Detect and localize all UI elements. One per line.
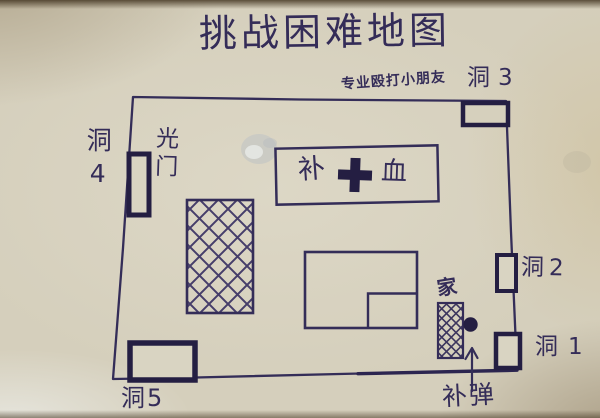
hole-5-door [130,343,195,380]
light-door-label: 光门 [151,126,177,183]
hole-2-label: 洞2 [521,256,569,281]
hole-5-label: 洞5 [121,386,164,411]
hole-1-door [496,334,520,368]
center-building-inner-room [368,294,417,329]
center-building [305,252,417,328]
hole-1-label: 洞1 [535,335,593,359]
home-block [438,303,463,358]
plus-cross-icon [337,157,372,192]
map-drawing [0,0,600,418]
hand-drawn-map-photo: 挑战困难地图 专业殴打小朋友 洞3 洞4 光门 洞2 洞1 洞5 家 补弹 补 … [0,0,600,418]
map-title: 挑战困难地图 [199,11,452,54]
hole-3-door [463,103,508,125]
hatched-zone [187,200,253,313]
hole-4-door [129,154,149,215]
map-bottom-wall-bold [358,370,517,374]
health-refill-label-left: 补 [297,155,326,185]
paper-smudge [241,134,591,173]
hole-2-door [497,255,516,291]
health-refill-label-right: 血 [381,159,408,187]
hole-4-label: 洞4 [84,127,110,195]
hole-3-label: 洞3 [467,66,521,90]
spawn-dot [463,317,477,331]
home-label: 家 [435,276,458,300]
ammo-refill-label: 补弹 [441,382,496,411]
